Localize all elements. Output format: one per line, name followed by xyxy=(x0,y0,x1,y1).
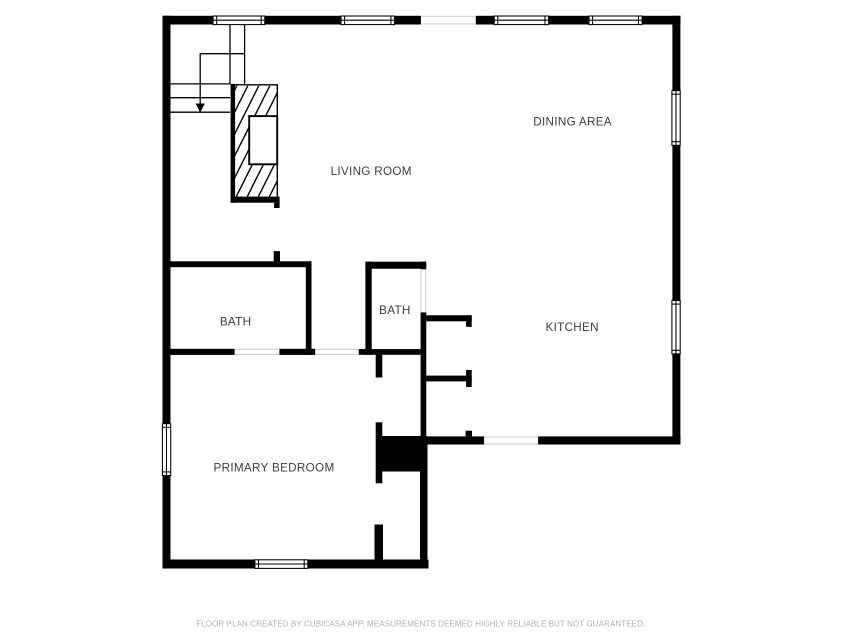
svg-text:LIVING ROOM: LIVING ROOM xyxy=(331,165,412,178)
svg-text:KITCHEN: KITCHEN xyxy=(545,321,598,334)
svg-text:FLOOR PLAN CREATED BY CUBICASA: FLOOR PLAN CREATED BY CUBICASA APP. MEAS… xyxy=(196,620,645,629)
svg-text:PRIMARY BEDROOM: PRIMARY BEDROOM xyxy=(214,461,335,474)
svg-text:BATH: BATH xyxy=(379,304,411,317)
svg-text:DINING AREA: DINING AREA xyxy=(533,116,612,129)
svg-text:BATH: BATH xyxy=(220,316,252,329)
